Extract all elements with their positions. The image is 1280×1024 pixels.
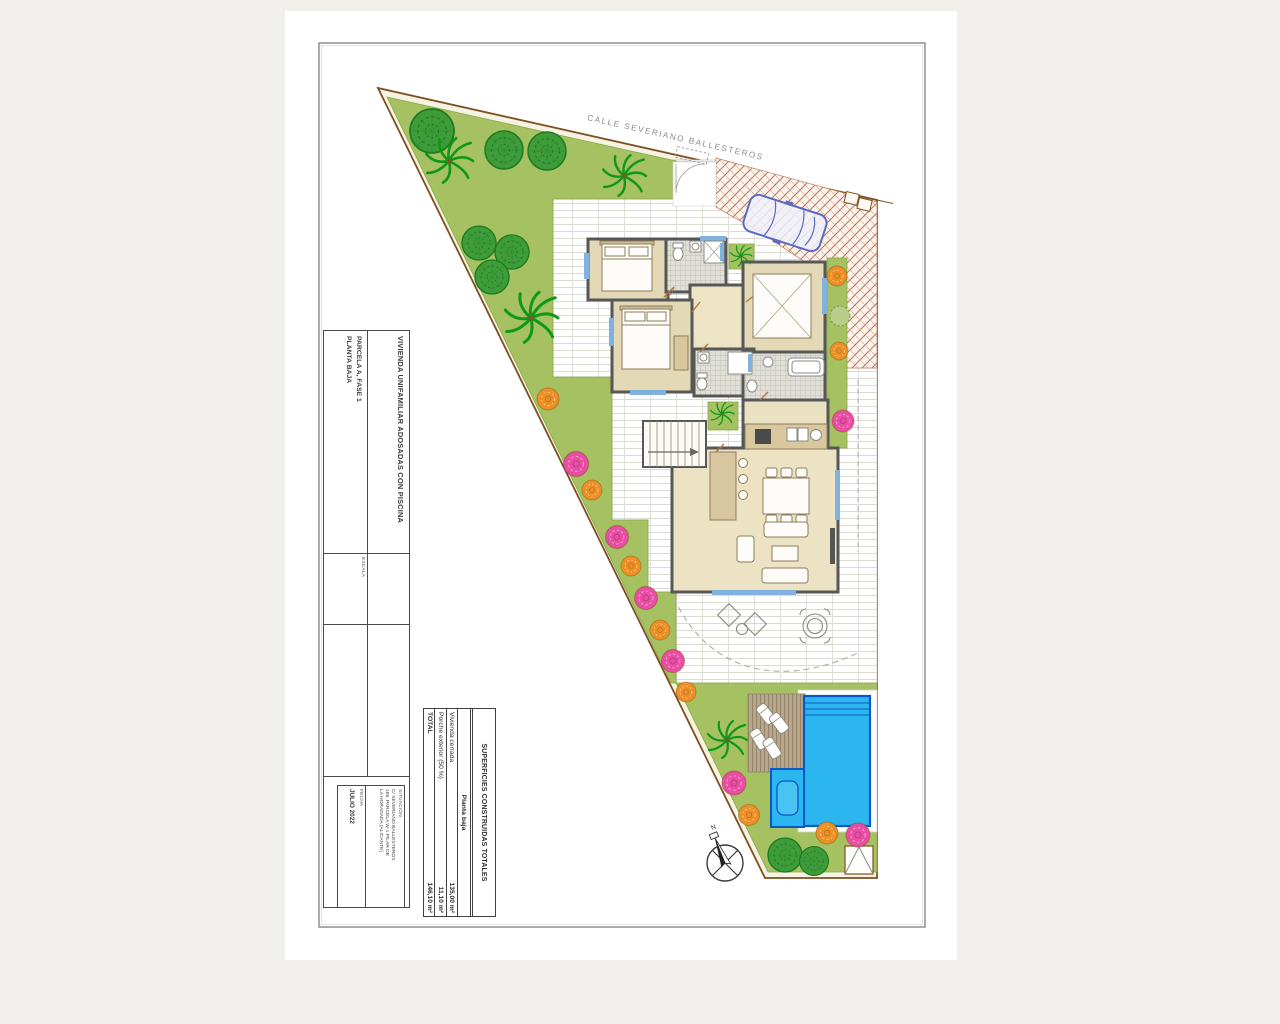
tv-unit [830,528,835,564]
bush-icon [606,526,629,549]
location-line-2: 186, PARCELA W-1 PILAR DE [383,786,389,907]
date-label: FECHA [356,786,365,907]
shrub-outline [830,306,850,326]
areas-table-title: SUPERFICIES CONSTRUIDAS TOTALES [470,709,495,916]
room-living-dining [672,448,838,592]
bush-icon [635,587,658,610]
tree-icon [410,109,454,153]
bush-icon [537,388,559,410]
tree-icon [475,260,509,294]
table-row: Porche exterior (50 %) 11,10 m² [434,709,445,916]
title-block-project-section: VIVIENDA UNIFAMILIAR ADOSADAS CON PISCIN… [324,331,409,553]
project-title: VIVIENDA UNIFAMILIAR ADOSADAS CON PISCIN… [367,331,409,553]
tree-icon [768,838,802,872]
bush-icon [650,620,670,640]
wardrobe [674,336,688,370]
location-label: SITUACIÓN [395,786,404,907]
oven-icon [755,429,771,444]
title-block: VIVIENDA UNIFAMILIAR ADOSADAS CON PISCIN… [323,330,410,908]
location-date-box: SITUACIÓN C/ SEVERIANO BALLESTEROS, 186,… [337,785,405,908]
location-line-3: LA HORADADA (ALICANTE) [377,786,383,907]
bush-icon [582,480,602,500]
date-value: JULIO 2022 [347,786,356,907]
coffee-table [772,546,798,561]
floor-plan-drawing: N CALLE SEVERIANO BALLESTEROS [0,0,1280,1024]
areas-table-subtitle: Planta baja [457,709,470,916]
date-cell: FECHA JULIO 2022 [347,786,365,907]
screenshot-stage: N CALLE SEVERIANO BALLESTEROS VIVIENDA U… [0,0,1280,1024]
sofa [764,522,808,537]
row-value: 146,10 m² [426,869,433,916]
table-row-total: TOTAL 146,10 m² [424,709,434,916]
bush-icon [739,805,760,826]
bush-icon [662,650,685,673]
row-label: Porche exterior (50 %) [437,709,444,869]
tree-icon [800,847,829,876]
bush-icon [621,556,641,576]
tree-icon [485,131,523,169]
built-areas-table: SUPERFICIES CONSTRUIDAS TOTALES Planta b… [423,708,496,917]
bush-icon [722,771,746,795]
parcel-phase: PARCELA A, FASE 1 PLANTA BAJA [324,331,367,553]
row-value: 135,00 m² [448,869,455,916]
table-row: Vivienda cerrada 135,00 m² [446,709,457,916]
utility-box [845,846,873,874]
bush-icon [832,410,854,432]
parcel-line-2: PLANTA BAJA [343,336,353,548]
bush-icon [846,823,870,847]
sofa-2 [762,568,808,583]
armchair [737,536,754,562]
bush-icon [827,266,847,286]
bush-icon [676,682,696,702]
title-block-scale-section: ESCALA [324,553,409,624]
parcel-line-1: PARCELA A, FASE 1 [353,336,363,548]
title-block-info-section: SITUACIÓN C/ SEVERIANO BALLESTEROS, 186,… [324,776,409,909]
location-cell: SITUACIÓN C/ SEVERIANO BALLESTEROS, 186,… [365,786,404,907]
bush-icon [830,342,848,360]
row-label: TOTAL [426,709,433,869]
row-label: Vivienda cerrada [448,709,455,869]
title-block-empty-section [324,624,409,776]
bush-icon [816,822,838,844]
staircase [643,421,706,467]
tree-icon [462,226,496,260]
room-hallway [690,285,746,349]
tree-icon [528,132,566,170]
location-line-1: C/ SEVERIANO BALLESTEROS, [389,786,395,907]
kitchen-island [710,452,736,520]
dining-table [763,478,809,514]
bush-icon [564,452,589,477]
scale-label: ESCALA [324,554,367,624]
row-value: 11,10 m² [437,869,444,916]
